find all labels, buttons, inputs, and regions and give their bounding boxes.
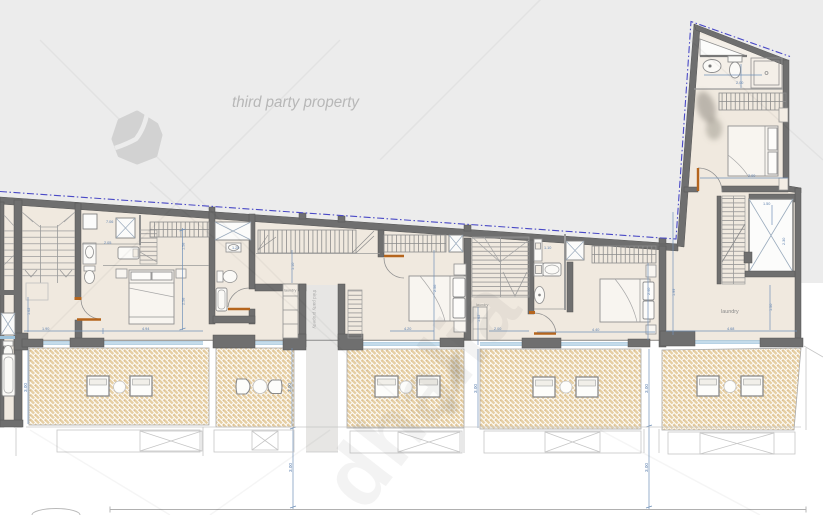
svg-text:1.99: 1.99	[672, 289, 676, 296]
svg-text:7.06: 7.06	[106, 220, 113, 224]
svg-text:2.58: 2.58	[182, 298, 186, 305]
svg-text:1.90: 1.90	[42, 327, 49, 331]
svg-text:3.00: 3.00	[287, 383, 292, 392]
svg-text:4.94: 4.94	[142, 327, 149, 331]
svg-text:laundry: laundry	[721, 309, 739, 315]
svg-text:2.00: 2.00	[748, 174, 755, 178]
svg-text:third party property: third party property	[312, 290, 317, 329]
svg-text:2.56: 2.56	[433, 285, 437, 292]
svg-text:4.40: 4.40	[592, 328, 599, 332]
svg-text:2.30: 2.30	[782, 238, 786, 245]
svg-text:1.58: 1.58	[182, 243, 186, 250]
svg-text:3.00: 3.00	[644, 384, 649, 393]
svg-text:1.10: 1.10	[291, 263, 295, 270]
svg-text:3.00: 3.00	[288, 463, 293, 472]
svg-text:1.02: 1.02	[27, 308, 31, 315]
svg-text:2.05: 2.05	[104, 241, 111, 245]
svg-text:1.50: 1.50	[769, 304, 773, 311]
svg-text:2.40: 2.40	[647, 288, 651, 295]
svg-text:1.50: 1.50	[763, 202, 770, 206]
svg-text:third party property: third party property	[232, 94, 360, 111]
svg-text:3.00: 3.00	[23, 383, 28, 392]
svg-text:1.20: 1.20	[232, 246, 239, 250]
svg-text:4.68: 4.68	[727, 327, 734, 331]
svg-text:1.10: 1.10	[544, 246, 551, 250]
svg-text:3.00: 3.00	[644, 463, 649, 472]
